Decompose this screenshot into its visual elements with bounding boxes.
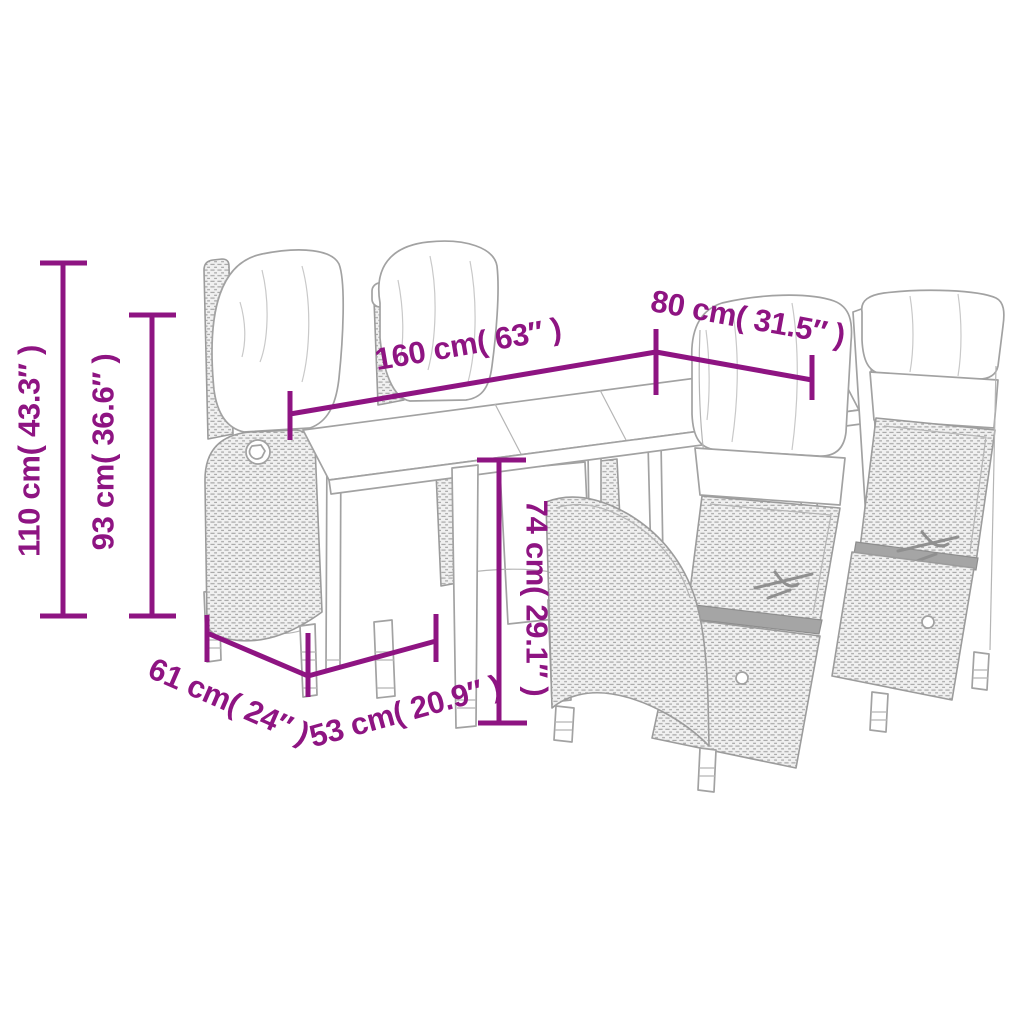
dimension-diagram: 110 cm( 43.3″ ) 93 cm( 36.6″ ) 160 cm( 6… xyxy=(0,0,1024,1024)
dimension-110cm: 110 cm( 43.3″ ) xyxy=(12,263,88,616)
chair-leg xyxy=(972,652,989,690)
dimension-line xyxy=(40,263,87,616)
dimension-label-110cm: 110 cm( 43.3″ ) xyxy=(12,345,47,557)
chair-back-cushion xyxy=(379,241,498,401)
furniture-line-art xyxy=(204,241,1004,792)
dimension-93cm: 93 cm( 36.6″ ) xyxy=(86,315,177,616)
chair-lower-wicker xyxy=(832,552,974,700)
cushion-button xyxy=(736,672,748,684)
chair-far-right xyxy=(832,290,1004,732)
cushion-button xyxy=(922,616,934,628)
chair-leg xyxy=(554,706,574,742)
chair-leg xyxy=(698,748,716,792)
chair-back-wicker xyxy=(688,496,840,622)
chair-cushion-band xyxy=(695,448,845,505)
chair-front-right xyxy=(546,295,852,792)
dimension-label-74cm: 74 cm( 29.1″ ) xyxy=(520,500,555,697)
recline-knob-wing xyxy=(250,445,266,459)
chair-head-cushion xyxy=(862,290,1004,379)
chair-back-cushion xyxy=(212,250,343,432)
dimension-label-93cm: 93 cm( 36.6″ ) xyxy=(86,354,121,551)
dimension-line xyxy=(129,315,176,616)
